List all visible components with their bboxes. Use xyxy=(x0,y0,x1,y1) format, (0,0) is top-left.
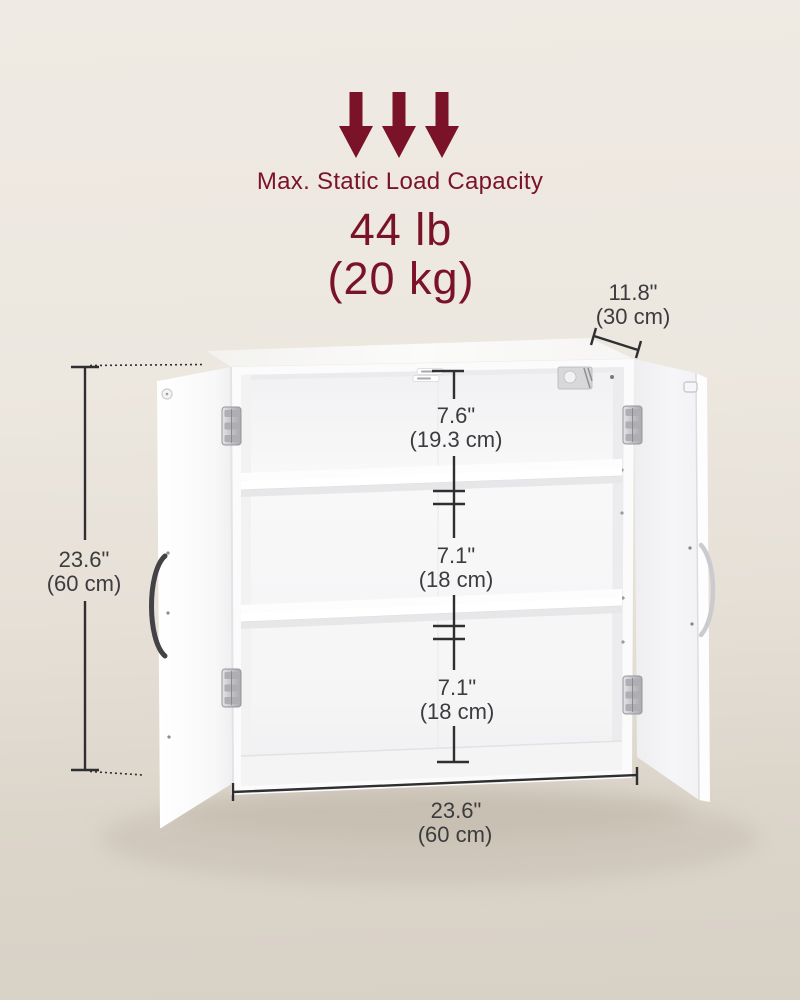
hinge-icon xyxy=(623,406,642,444)
down-arrow-icon xyxy=(425,92,459,158)
compartment-3-height-inches: 7.1" xyxy=(438,677,476,699)
compartment-3-height-cm: (18 cm) xyxy=(420,701,495,723)
interior-left-wall xyxy=(241,375,251,786)
product-dimension-infographic: Max. Static Load Capacity 44 lb (20 kg) … xyxy=(0,0,800,1000)
load-capacity-arrows xyxy=(339,92,459,158)
door-catch xyxy=(684,382,697,392)
compartment-1-height-inches: 7.6" xyxy=(437,405,475,427)
hinge-icon xyxy=(623,676,642,714)
compartment-2-height-inches: 7.1" xyxy=(437,545,475,567)
width-dimension-cm: (60 cm) xyxy=(418,824,493,846)
right-door xyxy=(634,359,713,802)
load-capacity-kilograms: (20 kg) xyxy=(327,256,474,301)
load-capacity-pounds: 44 lb xyxy=(350,207,453,252)
load-capacity-title: Max. Static Load Capacity xyxy=(257,170,543,194)
compartment-1-height-cm: (19.3 cm) xyxy=(410,429,503,451)
width-dimension-inches: 23.6" xyxy=(431,800,482,822)
hinge-icon xyxy=(222,669,241,707)
left-door xyxy=(152,367,234,828)
compartment-2-height-cm: (18 cm) xyxy=(419,569,494,591)
height-dimension-cm: (60 cm) xyxy=(47,573,122,595)
right-door-panel xyxy=(634,359,699,800)
interior-right-wall xyxy=(612,367,624,770)
depth-dimension-cm: (30 cm) xyxy=(596,306,671,328)
depth-dimension-inches: 11.8" xyxy=(609,282,658,304)
hinge-icon xyxy=(222,407,241,445)
cabinet-illustration xyxy=(0,0,800,1000)
height-dimension-inches: 23.6" xyxy=(59,549,110,571)
down-arrow-icon xyxy=(339,92,373,158)
down-arrow-icon xyxy=(382,92,416,158)
